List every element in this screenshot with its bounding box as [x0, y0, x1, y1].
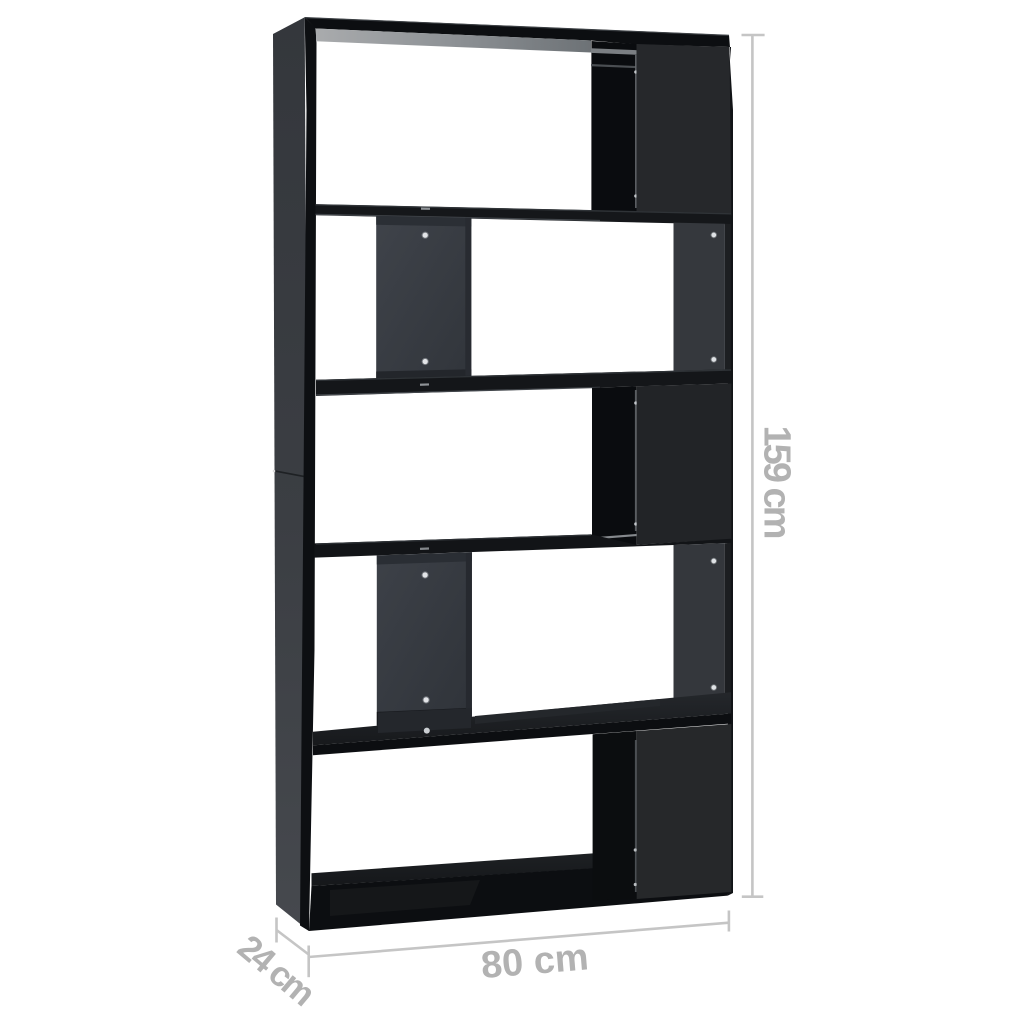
- svg-text:80 cm: 80 cm: [479, 936, 590, 987]
- svg-text:159 cm: 159 cm: [756, 426, 798, 540]
